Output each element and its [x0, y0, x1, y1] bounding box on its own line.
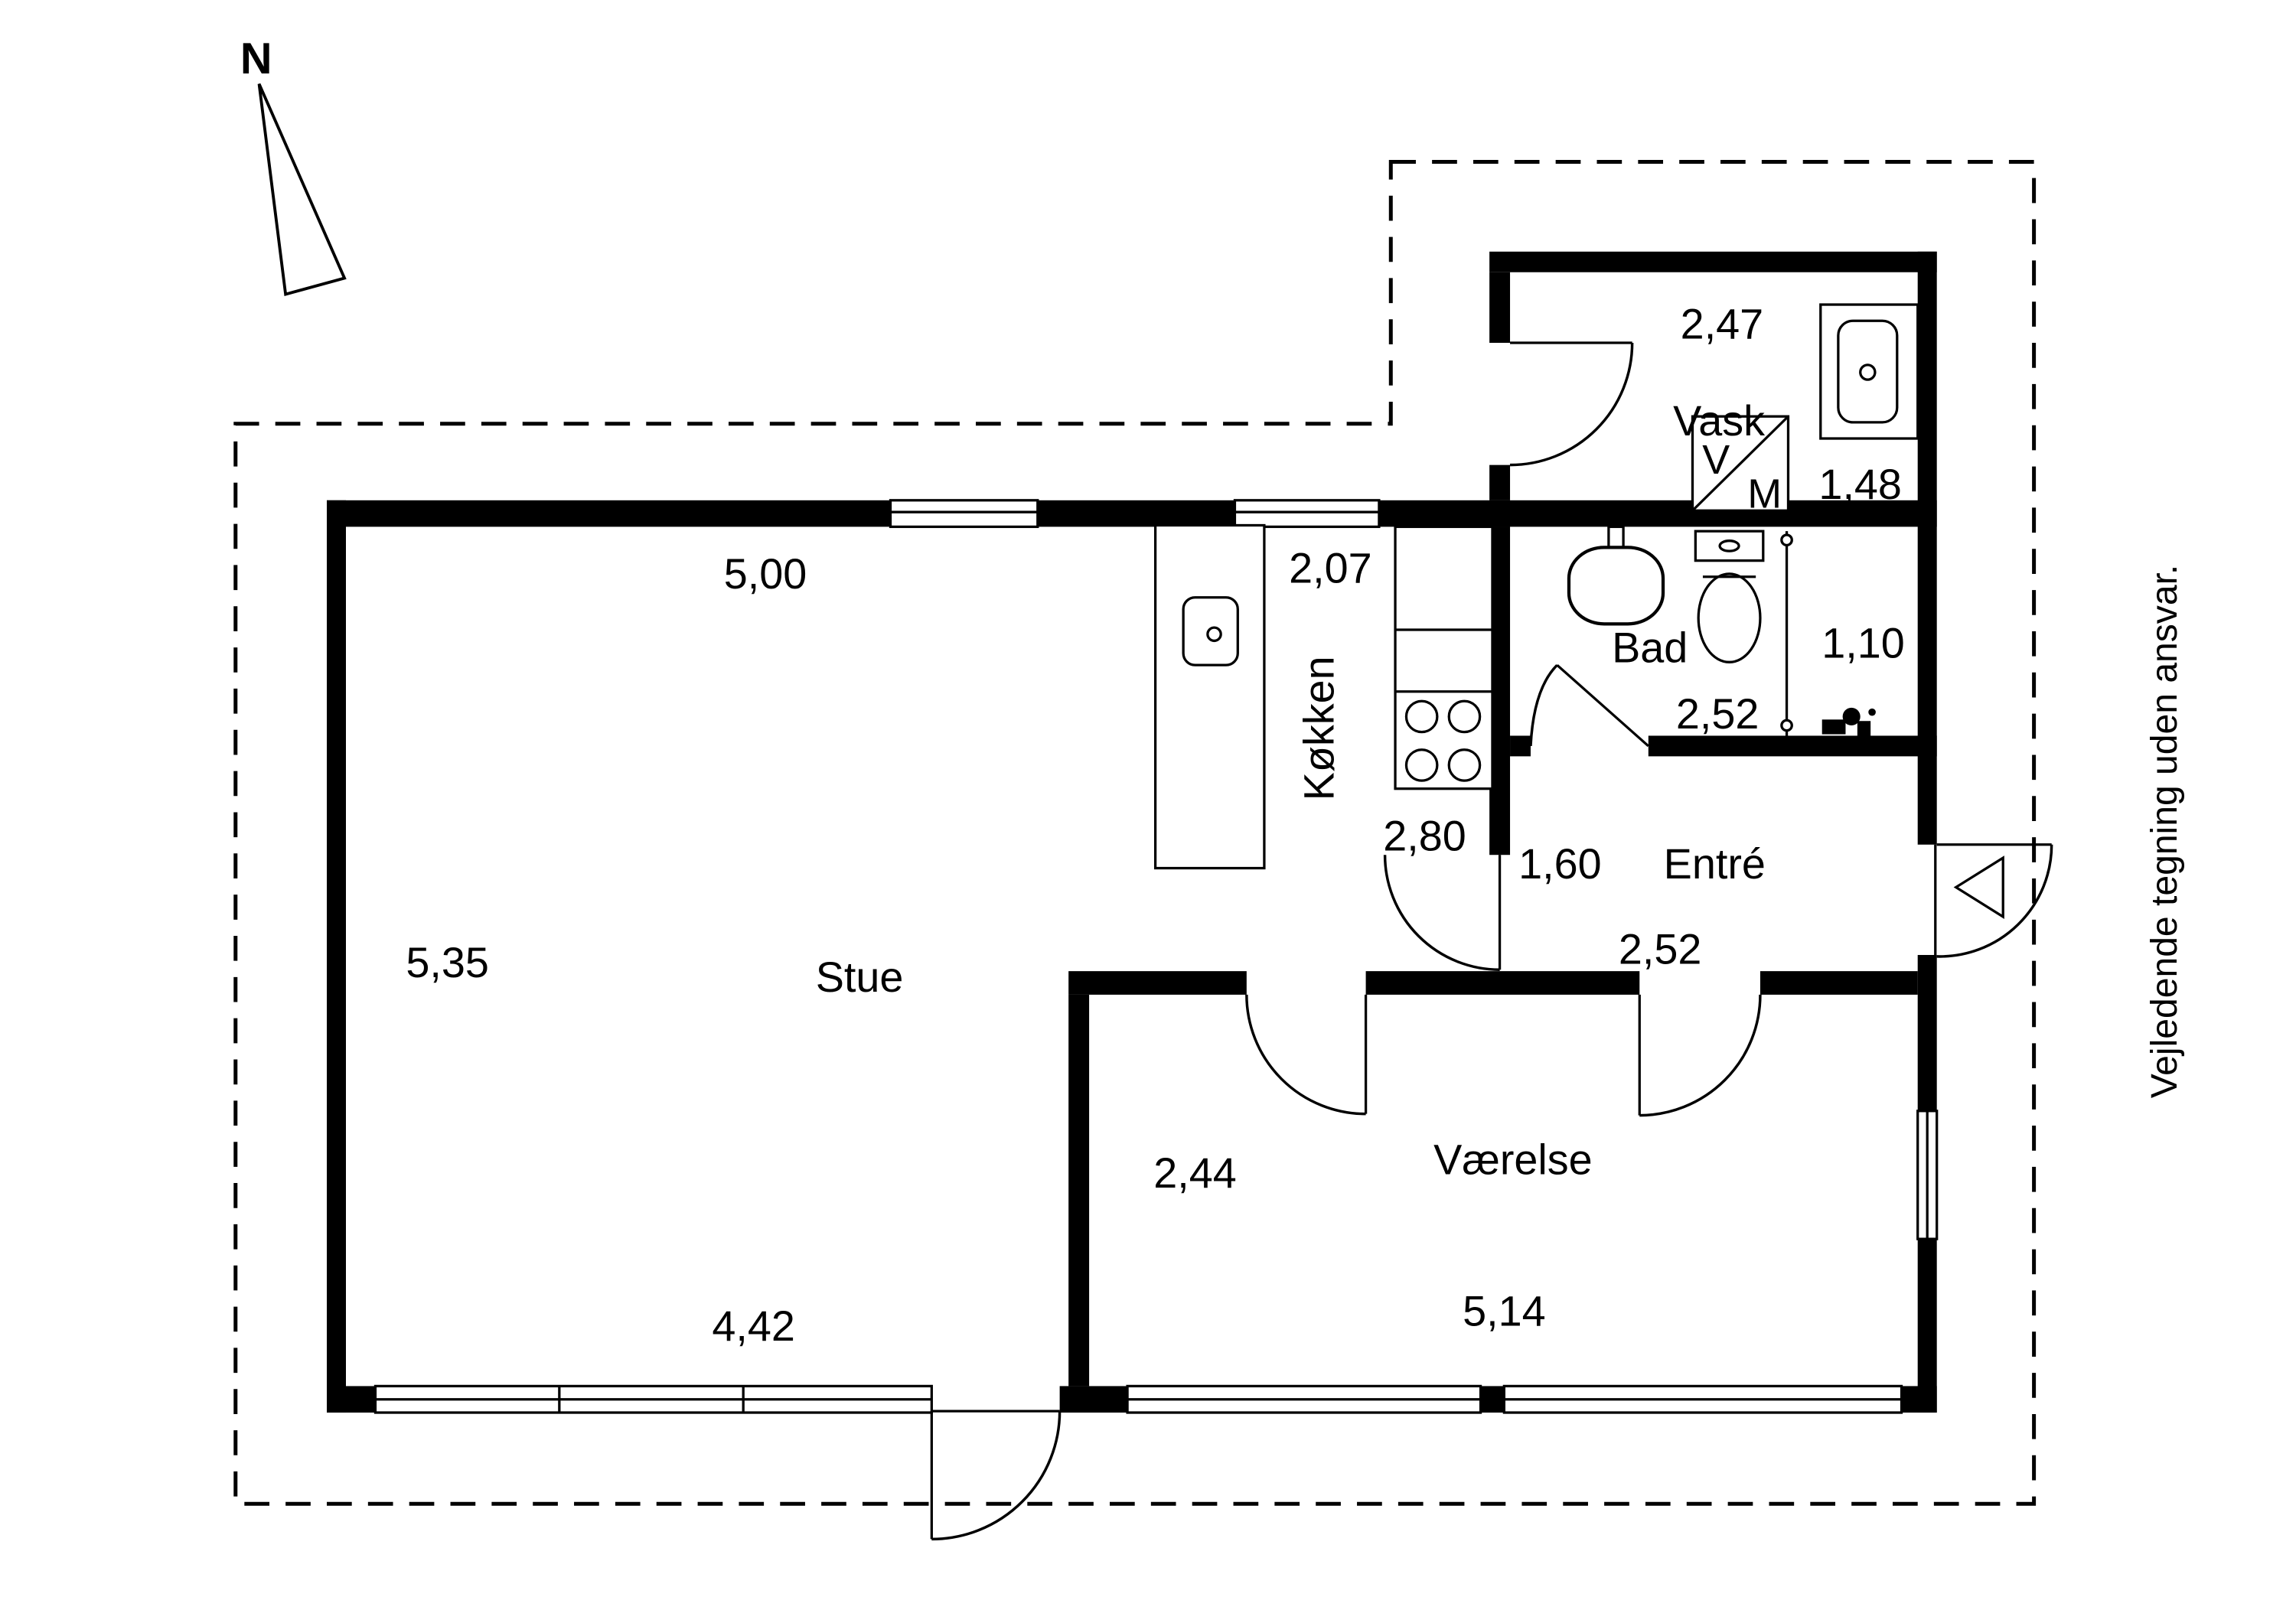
wall-bad-bottom-left	[1510, 735, 1531, 756]
dim-vaerelse-left: 2,44	[1153, 1149, 1237, 1197]
toilet-icon	[1695, 531, 1763, 662]
wall-bottom-mid	[1060, 1386, 1127, 1413]
kitchen-island	[1156, 525, 1264, 868]
room-label-vask: Vask	[1673, 397, 1765, 445]
door-entre-vaerelse	[1639, 995, 1760, 1116]
window-right-vaerelse	[1918, 1111, 1937, 1239]
door-vask	[1510, 343, 1632, 465]
dim-stue-left: 5,35	[406, 939, 489, 986]
wall-vaerelse-left	[1068, 995, 1089, 1387]
page-background: N	[0, 0, 2296, 1623]
wall-right-lower	[1918, 1239, 1937, 1413]
kitchen-counter	[1395, 526, 1492, 788]
wall-left	[327, 500, 346, 1413]
dim-vask-top: 2,47	[1681, 300, 1764, 347]
door-stue-vaerelse	[1247, 995, 1366, 1114]
window-top-1	[890, 500, 1037, 527]
dim-bad-shower: 1,10	[1821, 620, 1905, 667]
dim-kokken-bottom: 2,80	[1383, 812, 1466, 859]
north-arrow-icon	[259, 84, 345, 295]
window-bottom-vaerelse-2	[1504, 1386, 1901, 1413]
room-label-entre: Entré	[1664, 840, 1766, 888]
washer-letter-m: M	[1747, 471, 1782, 517]
room-label-stue: Stue	[816, 953, 904, 1001]
kitchen-sink-drain-icon	[1208, 627, 1221, 640]
wall-vaerelse-top-2	[1366, 971, 1640, 995]
wall-vask-left-lower	[1489, 465, 1510, 500]
floor-plan: N	[0, 0, 2296, 1623]
wall-bad-bottom-right	[1649, 735, 1937, 756]
wall-bottom-window-divider	[1481, 1386, 1505, 1413]
dim-entre-bottom: 2,52	[1619, 926, 1702, 973]
dim-bad-bottom: 2,52	[1676, 690, 1760, 738]
disclaimer-text: Vejledende tegning uden ansvar.	[2144, 565, 2185, 1099]
plot-boundary-dashed	[236, 162, 2034, 1504]
room-label-bad: Bad	[1612, 624, 1688, 671]
dim-stue-top: 5,00	[724, 550, 807, 598]
room-label-vaerelse: Værelse	[1433, 1136, 1593, 1184]
dim-vask-right: 1,48	[1818, 461, 1902, 508]
dim-entre-left: 1,60	[1518, 840, 1602, 888]
door-entre-bad	[1531, 665, 1649, 746]
shower-partition	[1782, 531, 1792, 735]
washbasin-icon	[1569, 526, 1663, 624]
window-top-2	[1234, 500, 1378, 527]
dim-vaerelse-bottom: 5,14	[1463, 1288, 1546, 1335]
north-arrow: N	[240, 34, 344, 294]
door-stue-entre	[1385, 855, 1500, 970]
wall-vaerelse-top-1	[1068, 971, 1247, 995]
north-label: N	[240, 34, 272, 83]
room-label-kokken: Køkken	[1295, 656, 1342, 800]
wall-vask-left-upper	[1489, 272, 1510, 343]
window-bottom-stue	[375, 1386, 931, 1413]
utility-sink-drain-icon	[1861, 365, 1875, 380]
wall-bottom-left-corner	[327, 1386, 375, 1413]
wall-right-mid	[1918, 955, 1937, 1111]
terrace-door	[931, 1411, 1059, 1539]
wall-vaerelse-top-3	[1760, 971, 1918, 995]
dim-stue-window: 4,42	[712, 1302, 795, 1350]
entrance-direction-triangle-icon	[1956, 858, 2004, 917]
shower-faucet-icon	[1822, 708, 1876, 737]
wall-vask-top	[1489, 252, 1937, 272]
dim-kokken-top: 2,07	[1289, 544, 1372, 592]
window-bottom-vaerelse-1	[1127, 1386, 1481, 1413]
